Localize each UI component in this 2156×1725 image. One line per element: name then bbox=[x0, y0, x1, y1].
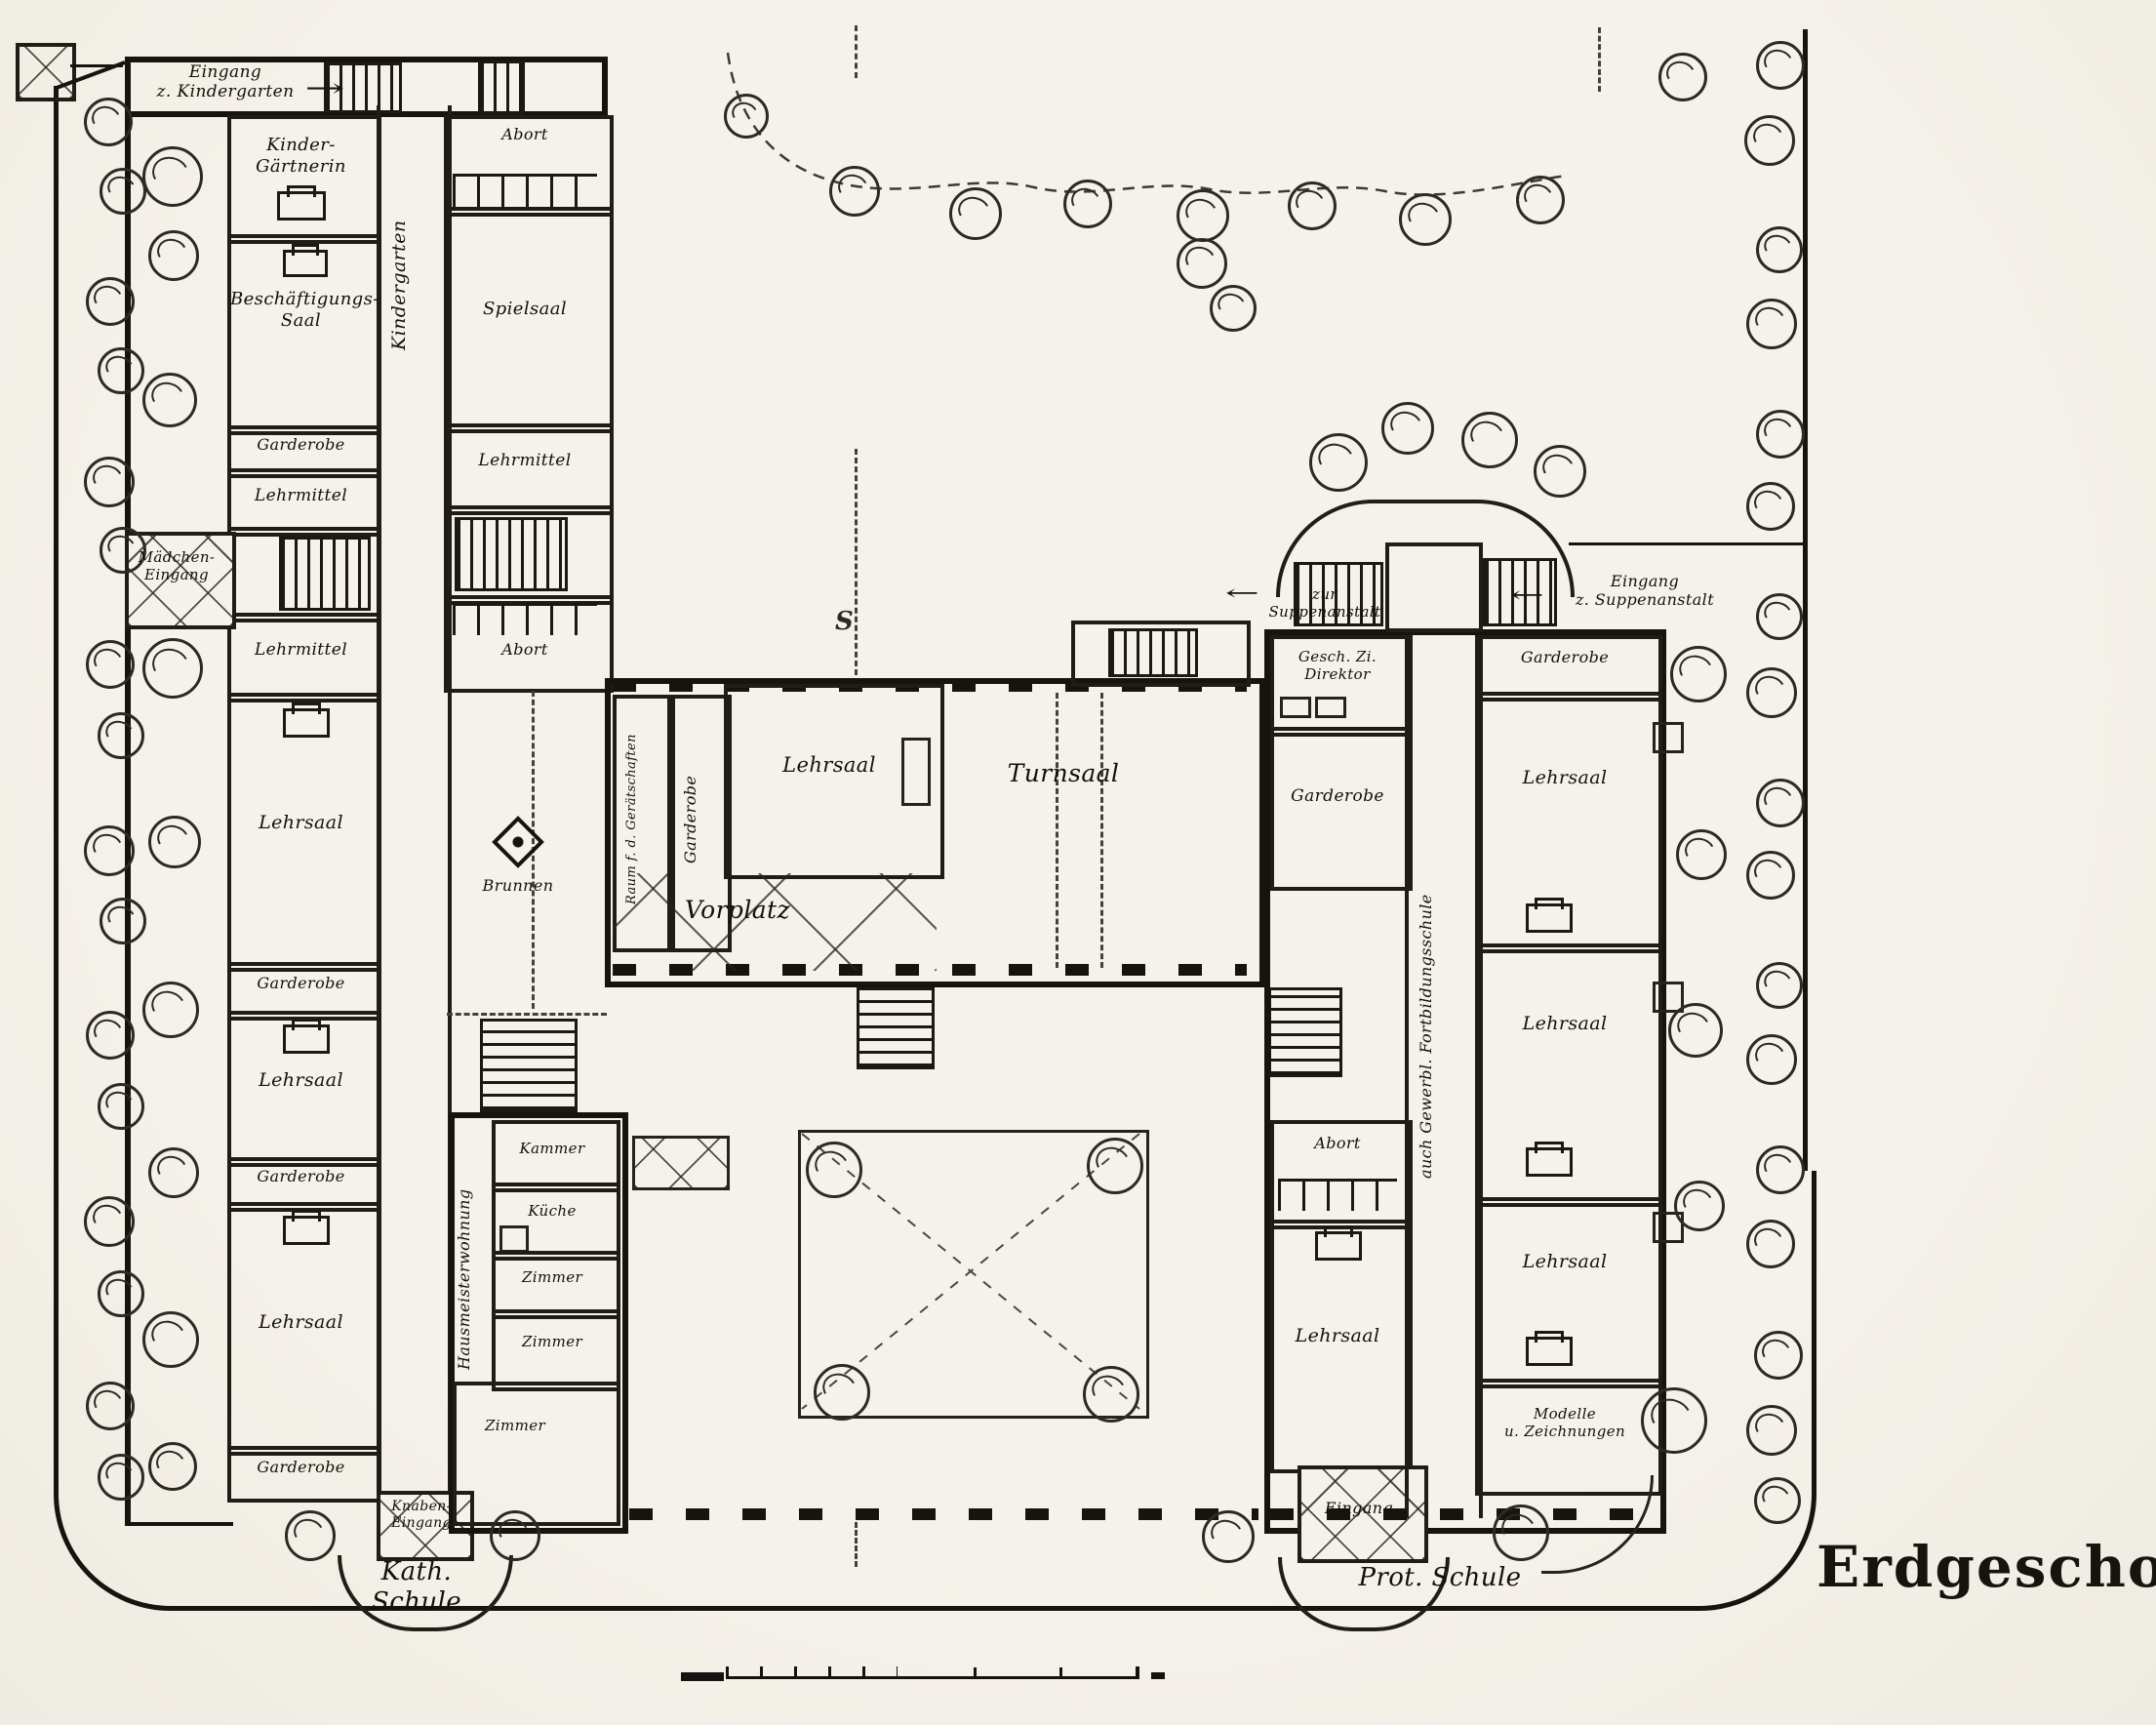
label-zur-suppenanstalt: zur Suppenanstalt bbox=[1257, 585, 1393, 621]
tree-icon bbox=[142, 146, 203, 207]
tree-icon bbox=[98, 1454, 144, 1501]
tree-icon bbox=[1674, 1181, 1725, 1231]
tree-icon bbox=[86, 1011, 135, 1060]
tree-icon bbox=[1399, 193, 1452, 246]
floor-plan: S Eingang z. Kindergarten → Kinder- Gärt… bbox=[0, 0, 2156, 1725]
tree-icon bbox=[84, 825, 135, 876]
room-label: Zimmer bbox=[457, 1417, 574, 1434]
room-label: Zimmer bbox=[494, 1333, 611, 1350]
tree-icon bbox=[84, 98, 133, 146]
room-label: Abort bbox=[1272, 1134, 1403, 1152]
arrow-left-icon: ← bbox=[1225, 583, 1259, 605]
room-label: Kammer bbox=[494, 1140, 611, 1157]
tree-icon bbox=[1670, 646, 1727, 702]
tree-icon bbox=[1756, 226, 1803, 273]
room-label: Abort bbox=[449, 640, 601, 659]
tree-icon bbox=[1756, 41, 1805, 90]
tree-icon bbox=[1746, 1034, 1797, 1085]
tree-icon bbox=[1756, 779, 1805, 827]
tree-icon bbox=[1309, 433, 1368, 492]
tree-icon bbox=[98, 712, 144, 759]
room-label: Lehrsaal bbox=[751, 753, 907, 778]
room-label: Lehrmittel bbox=[449, 451, 601, 470]
tree-icon bbox=[148, 1442, 197, 1491]
tree-icon bbox=[1746, 482, 1795, 531]
tree-icon bbox=[84, 1196, 135, 1247]
room-label: Küche bbox=[494, 1202, 611, 1220]
tree-icon bbox=[142, 638, 203, 699]
tree-icon bbox=[1746, 1220, 1795, 1268]
room-label: Lehrsaal bbox=[1479, 1251, 1651, 1273]
tree-icon bbox=[1210, 285, 1257, 332]
room-label: Garderobe bbox=[1272, 786, 1403, 806]
room-label: Garderobe bbox=[681, 724, 712, 915]
tree-icon bbox=[1381, 402, 1434, 455]
tree-icon bbox=[1083, 1366, 1139, 1423]
tree-icon bbox=[814, 1364, 870, 1421]
tree-icon bbox=[86, 640, 135, 689]
tree-icon bbox=[148, 230, 199, 281]
label-hausmeisterwohnung: Hausmeisterwohnung bbox=[455, 1128, 492, 1430]
tree-icon bbox=[1063, 180, 1112, 228]
tree-icon bbox=[1534, 445, 1586, 498]
tree-icon bbox=[1746, 851, 1795, 900]
label-turnsaal: Turnsaal bbox=[956, 759, 1171, 788]
room-label: Kinder- Gärtnerin bbox=[230, 135, 372, 177]
tree-icon bbox=[1658, 53, 1707, 101]
label-eingang: Eingang bbox=[1307, 1499, 1411, 1517]
tree-icon bbox=[1756, 1145, 1805, 1194]
room-label: Lehrsaal bbox=[230, 812, 372, 834]
tree-icon bbox=[1746, 299, 1797, 349]
arrow-right-icon: → bbox=[304, 76, 344, 101]
tree-icon bbox=[1746, 1405, 1797, 1456]
room-label: Garderobe bbox=[230, 1458, 372, 1476]
label-knaben-eingang: Knaben- Eingang bbox=[367, 1499, 476, 1532]
room-label: Garderobe bbox=[1479, 648, 1651, 666]
tree-icon bbox=[1668, 1003, 1723, 1058]
tree-icon bbox=[1756, 593, 1803, 640]
room-label: Lehrsaal bbox=[1479, 767, 1651, 789]
label-vorplatz: Vorplatz bbox=[640, 896, 835, 925]
tree-icon bbox=[1754, 1331, 1803, 1380]
tree-icon bbox=[148, 1147, 199, 1198]
tree-icon bbox=[1754, 1477, 1801, 1524]
tree-icon bbox=[98, 347, 144, 394]
label-prot-schule: Prot. Schule bbox=[1344, 1563, 1536, 1593]
tree-icon bbox=[142, 982, 199, 1038]
tree-icon bbox=[98, 1083, 144, 1130]
room-label: Lehrmittel bbox=[230, 640, 372, 660]
tree-icon bbox=[1177, 189, 1229, 242]
tree-icon bbox=[86, 1382, 135, 1430]
tree-icon bbox=[1756, 410, 1805, 459]
tree-icon bbox=[829, 166, 880, 217]
tree-icon bbox=[806, 1142, 862, 1198]
label-maedchen-eingang: Mädchen- Eingang bbox=[127, 548, 226, 583]
tree-icon bbox=[86, 277, 135, 326]
room-label: Garderobe bbox=[230, 1167, 372, 1185]
room-label: Gesch. Zi. Direktor bbox=[1272, 648, 1403, 683]
tree-icon bbox=[84, 457, 135, 507]
room-label: Beschäftigungs- Saal bbox=[230, 289, 372, 331]
tree-icon bbox=[1177, 238, 1227, 289]
tree-icon bbox=[142, 1311, 199, 1368]
arrow-left-icon: ← bbox=[1510, 585, 1544, 607]
label-eingang-kindergarten: Eingang z. Kindergarten bbox=[142, 62, 308, 102]
tree-icon bbox=[724, 94, 769, 139]
room-label: Lehrsaal bbox=[1272, 1325, 1403, 1347]
tree-icon bbox=[142, 373, 197, 427]
room-label: Abort bbox=[449, 125, 601, 143]
tree-icon bbox=[285, 1510, 336, 1561]
tree-icon bbox=[490, 1510, 540, 1561]
tree-icon bbox=[98, 1270, 144, 1317]
tree-icon bbox=[1756, 962, 1803, 1009]
room-label: Lehrsaal bbox=[1479, 1013, 1651, 1035]
tree-icon bbox=[1493, 1504, 1549, 1561]
room-label: Lehrmittel bbox=[230, 486, 372, 505]
label-fortbildungsschule: auch Gewerbl. Fortbildungsschule bbox=[1417, 831, 1463, 1241]
label-kindergarten: Kindergarten bbox=[388, 207, 431, 363]
tree-icon bbox=[1202, 1510, 1255, 1563]
tree-icon bbox=[1746, 667, 1797, 718]
tree-icon bbox=[1744, 115, 1795, 166]
label-brunnen: Brunnen bbox=[464, 876, 572, 895]
tree-icon bbox=[100, 168, 146, 215]
room-label: Garderobe bbox=[230, 435, 372, 454]
tree-icon bbox=[1676, 829, 1727, 880]
tree-icon bbox=[148, 816, 201, 868]
tree-icon bbox=[1516, 176, 1565, 224]
room-label: Modelle u. Zeichnungen bbox=[1477, 1405, 1653, 1440]
section-mark: S bbox=[835, 607, 854, 636]
room-label: Spielsaal bbox=[449, 299, 601, 320]
room-label: Garderobe bbox=[230, 974, 372, 992]
tree-icon bbox=[949, 187, 1002, 240]
label-kath-schule: Kath. Schule bbox=[343, 1557, 490, 1618]
room-label: Lehrsaal bbox=[230, 1311, 372, 1334]
room-label: Zimmer bbox=[494, 1268, 611, 1286]
room-label: Lehrsaal bbox=[230, 1069, 372, 1092]
tree-icon bbox=[100, 898, 146, 944]
tree-icon bbox=[1087, 1138, 1143, 1194]
label-eingang-suppenanstalt: Eingang z. Suppenanstalt bbox=[1557, 572, 1733, 609]
tree-icon bbox=[1461, 412, 1518, 468]
page-title: Erdgeschoß bbox=[1817, 1534, 2156, 1600]
tree-icon bbox=[1288, 181, 1337, 230]
